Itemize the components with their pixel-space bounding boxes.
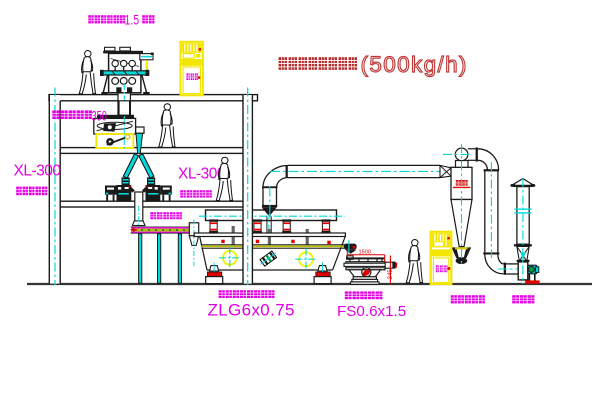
svg-text:XL-300: XL-300: [14, 163, 62, 180]
svg-text:(500kg/h): (500kg/h): [361, 52, 467, 77]
svg-text:1.5: 1.5: [125, 12, 140, 28]
svg-text:FS0.6x1.5: FS0.6x1.5: [337, 303, 406, 320]
svg-text:1500: 1500: [359, 250, 371, 256]
svg-text:345: 345: [387, 269, 394, 280]
svg-text:ZLG6x0.75: ZLG6x0.75: [208, 301, 295, 320]
svg-text:350: 350: [92, 110, 107, 124]
